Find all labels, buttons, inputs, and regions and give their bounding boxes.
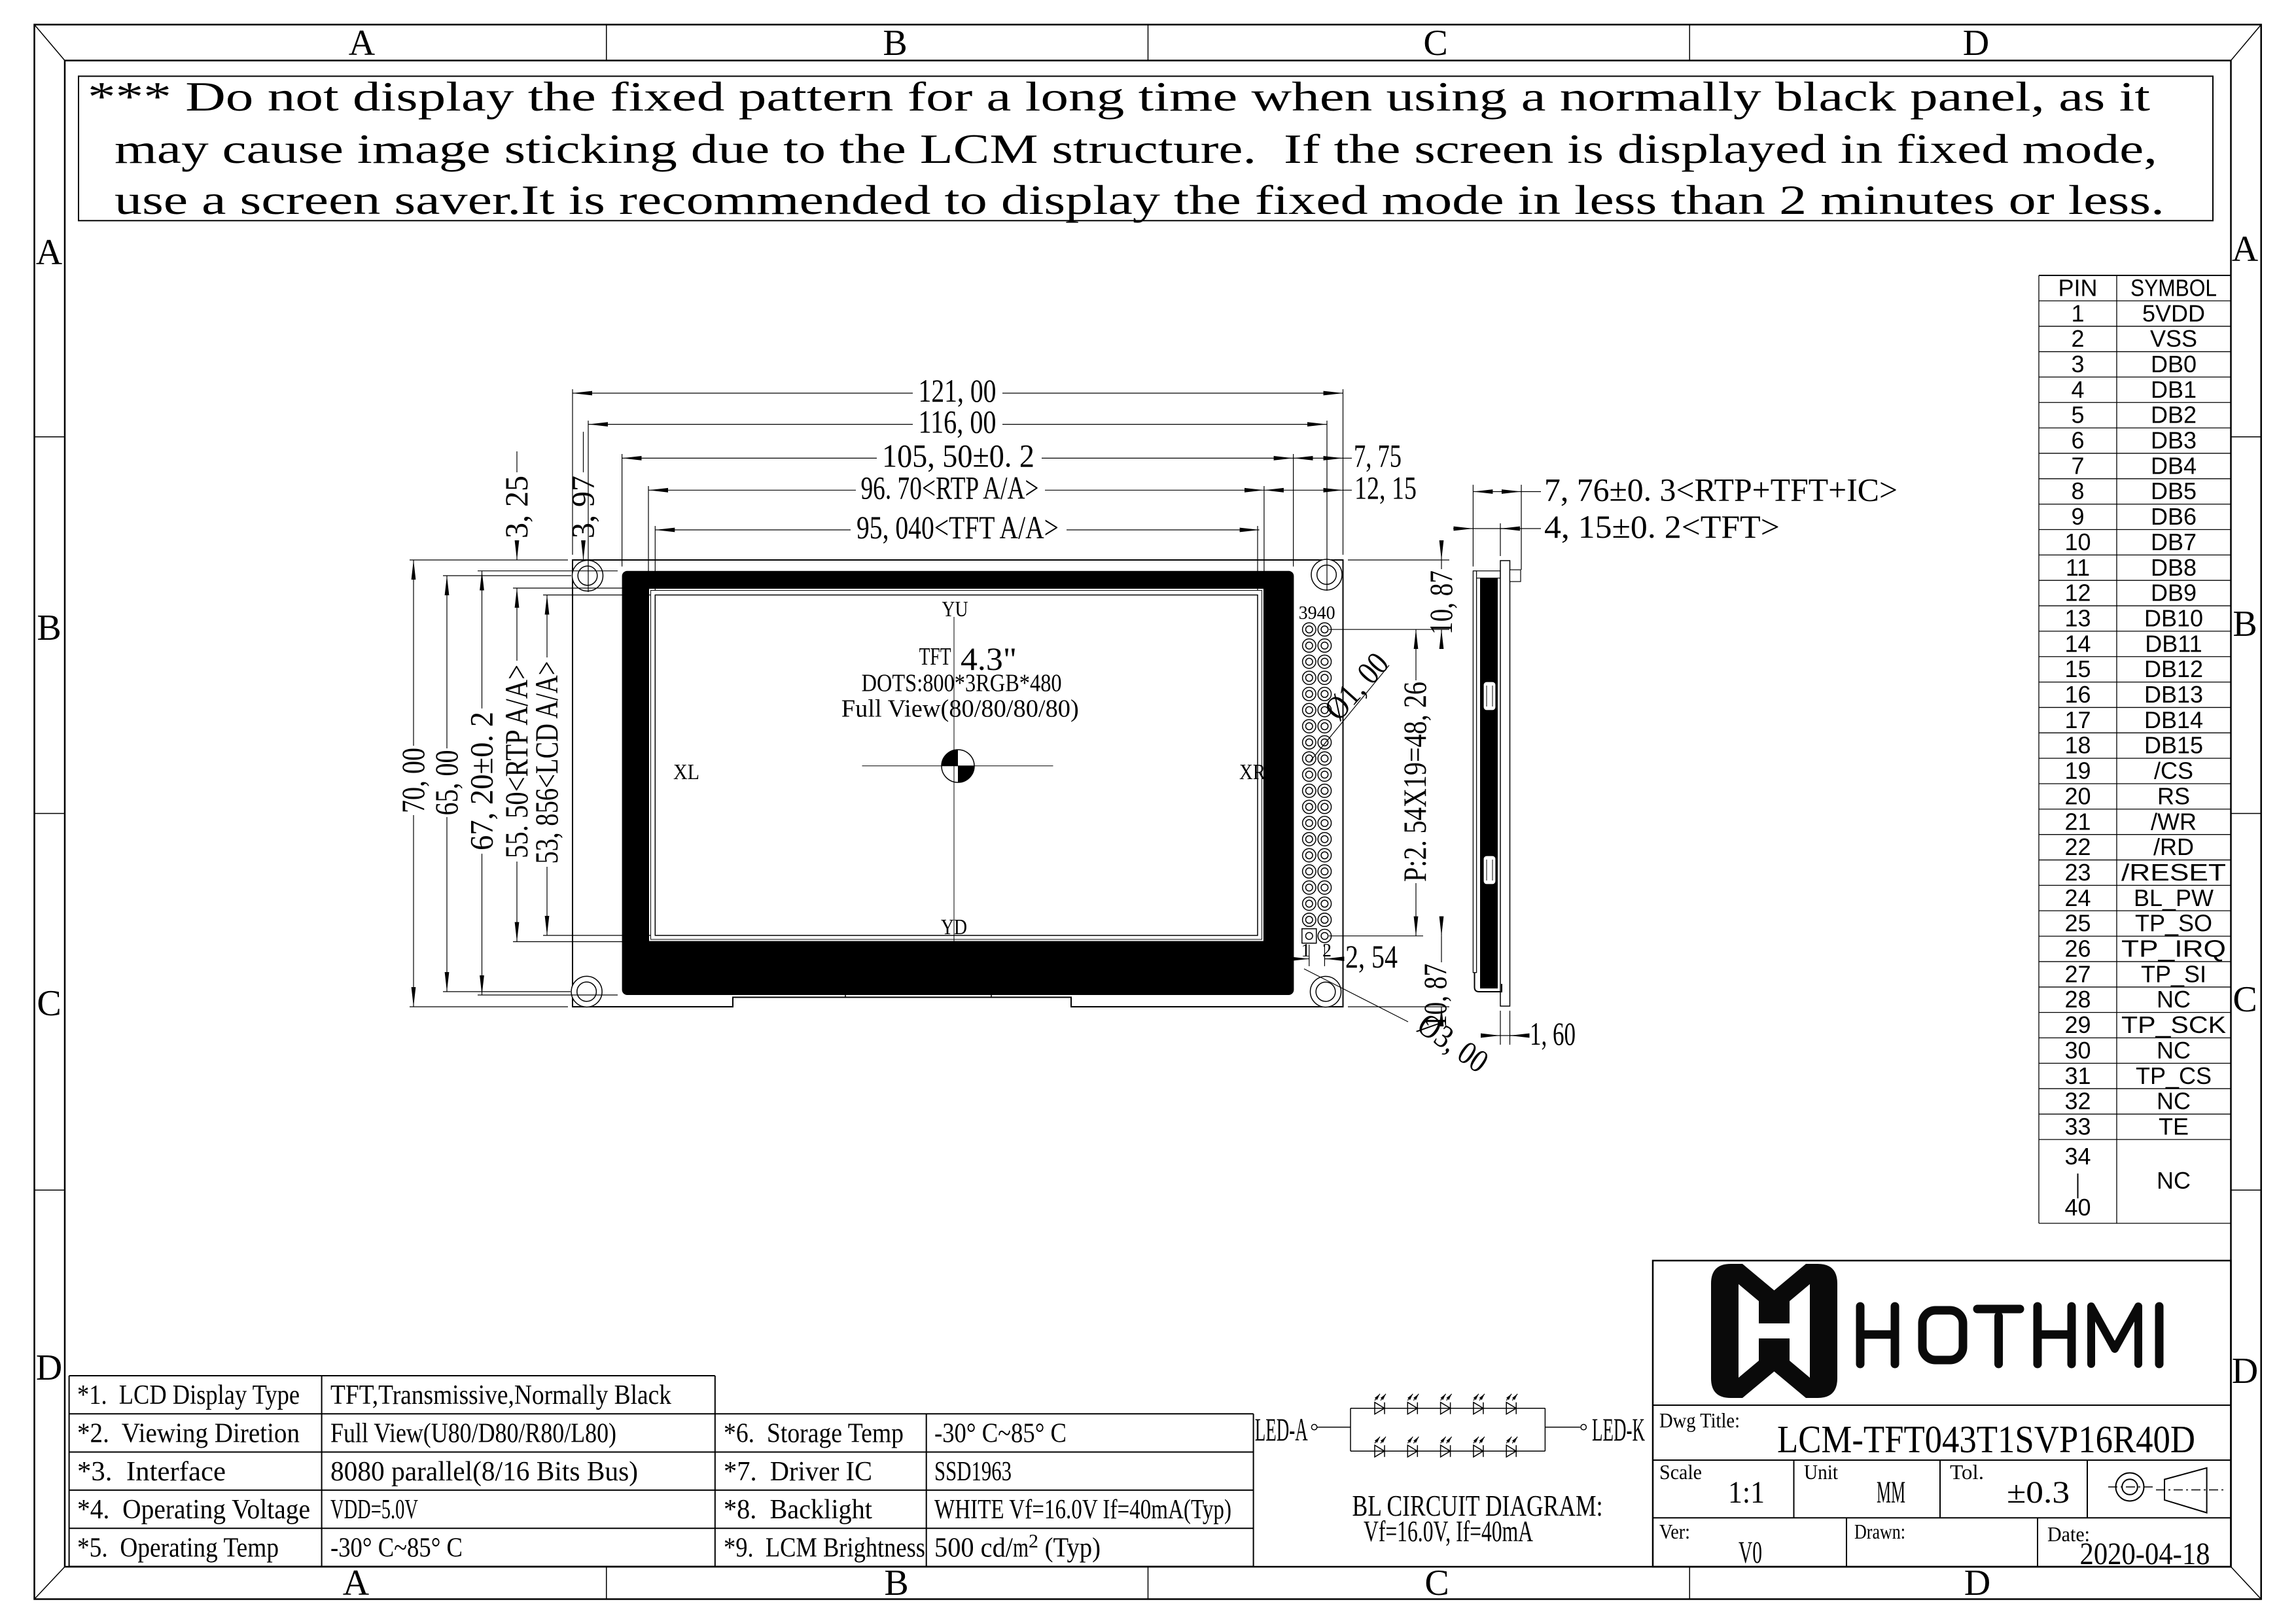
- svg-text:DB14: DB14: [2144, 707, 2203, 733]
- svg-text:Full View(U80/D80/R80/L80): Full View(U80/D80/R80/L80): [330, 1418, 616, 1448]
- svg-text:DB3: DB3: [2151, 427, 2197, 454]
- svg-text:*9. LCM Brightness: *9. LCM Brightness: [724, 1533, 925, 1563]
- svg-text:DB2: DB2: [2151, 402, 2197, 428]
- svg-text:DB5: DB5: [2151, 478, 2197, 504]
- svg-text:7, 76±0. 3<RTP+TFT+IC>: 7, 76±0. 3<RTP+TFT+IC>: [1544, 472, 1898, 508]
- svg-text:DB11: DB11: [2145, 630, 2202, 657]
- svg-text:1, 60: 1, 60: [1530, 1015, 1576, 1052]
- svg-text:4: 4: [2071, 376, 2084, 403]
- svg-text:3, 25: 3, 25: [498, 476, 535, 538]
- svg-text:Dwg Title:: Dwg Title:: [1659, 1408, 1740, 1432]
- svg-text:39: 39: [1299, 603, 1317, 623]
- svg-text:SYMBOL: SYMBOL: [2130, 274, 2217, 301]
- svg-text:*4. Operating Voltage: *4. Operating Voltage: [77, 1495, 310, 1525]
- svg-text:-30° C~85° C: -30° C~85° C: [330, 1533, 463, 1563]
- svg-text:B: B: [884, 1563, 908, 1603]
- svg-text:7, 75: 7, 75: [1354, 437, 1402, 474]
- svg-text:18: 18: [2064, 732, 2091, 759]
- svg-text:*7. Driver IC: *7. Driver IC: [724, 1457, 872, 1487]
- svg-text:TP_CS: TP_CS: [2136, 1062, 2212, 1089]
- svg-text:±0.3: ±0.3: [2007, 1475, 2070, 1510]
- svg-text:Scale: Scale: [1659, 1460, 1702, 1484]
- svg-text:use a screen saver.It is recom: use a screen saver.It is recommended to …: [115, 177, 2164, 223]
- svg-text:17: 17: [2064, 707, 2091, 733]
- svg-text:SSD1963: SSD1963: [934, 1457, 1012, 1487]
- svg-text:BL_PW: BL_PW: [2134, 884, 2214, 911]
- svg-text:20: 20: [2064, 782, 2091, 809]
- svg-text:19: 19: [2064, 758, 2091, 784]
- svg-text:DB9: DB9: [2151, 580, 2197, 606]
- svg-text:5: 5: [2071, 402, 2084, 428]
- svg-text:NC: NC: [2157, 986, 2191, 1013]
- svg-text:P:2. 54X19=48, 26: P:2. 54X19=48, 26: [1396, 682, 1433, 882]
- svg-text:96. 70<RTP A/A>: 96. 70<RTP A/A>: [861, 469, 1039, 506]
- svg-text:LCM-TFT043T1SVP16R40D: LCM-TFT043T1SVP16R40D: [1777, 1418, 2195, 1461]
- svg-text:*3. Interface: *3. Interface: [77, 1457, 226, 1487]
- svg-text:C: C: [1423, 23, 1447, 63]
- svg-text:2020-04-18: 2020-04-18: [2080, 1537, 2210, 1571]
- svg-text:DB13: DB13: [2144, 681, 2203, 708]
- svg-text:67, 20±0. 2: 67, 20±0. 2: [463, 712, 500, 850]
- svg-text:10: 10: [2064, 529, 2091, 555]
- svg-text:28: 28: [2064, 986, 2091, 1013]
- svg-text:40: 40: [2064, 1194, 2091, 1221]
- svg-text:2: 2: [2071, 325, 2084, 352]
- svg-text:*6. Storage Temp: *6. Storage Temp: [724, 1418, 904, 1448]
- svg-text:Tol.: Tol.: [1950, 1460, 1984, 1484]
- svg-text:DB10: DB10: [2144, 604, 2203, 631]
- svg-text:7: 7: [2071, 452, 2084, 479]
- svg-text:4, 15±0. 2<TFT>: 4, 15±0. 2<TFT>: [1544, 508, 1780, 545]
- svg-text:DB7: DB7: [2151, 529, 2197, 555]
- svg-text:24: 24: [2064, 884, 2091, 911]
- svg-text:31: 31: [2064, 1062, 2091, 1089]
- svg-text:12: 12: [2064, 580, 2091, 606]
- svg-text:29: 29: [2064, 1011, 2091, 1038]
- svg-text:D: D: [1964, 1563, 1990, 1603]
- svg-text:26: 26: [2064, 935, 2091, 962]
- svg-text:TP_IRQ: TP_IRQ: [2121, 935, 2226, 962]
- svg-text:15: 15: [2064, 655, 2091, 682]
- svg-text:NC: NC: [2157, 1037, 2191, 1064]
- svg-text:1:1: 1:1: [1728, 1475, 1765, 1510]
- svg-text:10, 87: 10, 87: [1422, 570, 1459, 635]
- svg-text:V0: V0: [1739, 1535, 1762, 1570]
- svg-text:3, 97: 3, 97: [565, 476, 601, 538]
- svg-text:Ver:: Ver:: [1659, 1520, 1690, 1543]
- svg-text:/RD: /RD: [2153, 833, 2194, 860]
- svg-text:34: 34: [2064, 1143, 2091, 1170]
- svg-text:95, 040<TFT A/A>: 95, 040<TFT A/A>: [857, 509, 1059, 546]
- svg-text:16: 16: [2064, 681, 2091, 708]
- svg-text:Unit: Unit: [1804, 1460, 1838, 1484]
- svg-text:13: 13: [2064, 604, 2091, 631]
- svg-text:3: 3: [2071, 351, 2084, 377]
- svg-text:DB0: DB0: [2151, 351, 2197, 377]
- svg-text:9: 9: [2071, 503, 2084, 530]
- svg-text:NC: NC: [2157, 1088, 2191, 1115]
- svg-text:8: 8: [2071, 478, 2084, 504]
- svg-text:A: A: [2232, 229, 2259, 270]
- svg-text:/WR: /WR: [2151, 808, 2197, 835]
- svg-text:may cause image sticking due t: may cause image sticking due to the LCM …: [115, 126, 2157, 172]
- svg-text:TFT,Transmissive,Normally Blac: TFT,Transmissive,Normally Black: [330, 1380, 671, 1410]
- svg-text:33: 33: [2064, 1113, 2091, 1140]
- svg-text:27: 27: [2064, 960, 2091, 987]
- svg-text:B: B: [37, 608, 61, 648]
- svg-text:A: A: [36, 232, 63, 273]
- svg-text:YU: YU: [942, 597, 968, 621]
- svg-text:25: 25: [2064, 910, 2091, 937]
- svg-text:5VDD: 5VDD: [2142, 300, 2205, 326]
- svg-text:TP_SCK: TP_SCK: [2121, 1011, 2226, 1038]
- svg-text:NC: NC: [2157, 1167, 2191, 1194]
- svg-text:VDD=5.0V: VDD=5.0V: [330, 1495, 418, 1525]
- svg-text:DB4: DB4: [2151, 452, 2197, 479]
- svg-text:WHITE Vf=16.0V If=40mA(Typ): WHITE Vf=16.0V If=40mA(Typ): [934, 1495, 1231, 1525]
- svg-text:A: A: [343, 1563, 370, 1603]
- svg-text:105, 50±0. 2: 105, 50±0. 2: [882, 437, 1034, 474]
- svg-text:DOTS:800*3RGB*480: DOTS:800*3RGB*480: [862, 669, 1062, 697]
- svg-text:*8. Backlight: *8. Backlight: [724, 1495, 872, 1525]
- svg-text:2, 54: 2, 54: [1345, 938, 1398, 975]
- svg-text:MM: MM: [1877, 1475, 1905, 1510]
- svg-text:14: 14: [2064, 630, 2091, 657]
- svg-text:D: D: [36, 1348, 62, 1388]
- svg-text:XR: XR: [1239, 760, 1265, 784]
- svg-text:DB6: DB6: [2151, 503, 2197, 530]
- svg-text:1: 1: [2071, 300, 2084, 326]
- svg-text:Full View(80/80/80/80): Full View(80/80/80/80): [841, 695, 1079, 723]
- svg-text:C: C: [1424, 1563, 1449, 1603]
- svg-text:500 cd/m2 (Typ): 500 cd/m2 (Typ): [934, 1530, 1101, 1563]
- svg-text:PIN: PIN: [2058, 274, 2097, 301]
- svg-text:D: D: [2232, 1351, 2258, 1391]
- svg-text:DB15: DB15: [2144, 732, 2203, 759]
- svg-text:Vf=16.0V, If=40mA: Vf=16.0V, If=40mA: [1364, 1514, 1533, 1548]
- svg-text:22: 22: [2064, 833, 2091, 860]
- svg-text:53, 856<LCD A/A>: 53, 856<LCD A/A>: [528, 661, 565, 864]
- svg-text:VSS: VSS: [2150, 325, 2197, 352]
- svg-text:TP_SO: TP_SO: [2135, 910, 2212, 937]
- svg-text:6: 6: [2071, 427, 2084, 454]
- svg-text:XL: XL: [673, 760, 699, 784]
- svg-text:70, 00: 70, 00: [395, 748, 431, 813]
- svg-text:30: 30: [2064, 1037, 2091, 1064]
- svg-text:DB12: DB12: [2144, 655, 2203, 682]
- svg-text:*1. LCD Display Type: *1. LCD Display Type: [77, 1380, 300, 1410]
- svg-text:11: 11: [2066, 554, 2090, 581]
- svg-text:/CS: /CS: [2154, 758, 2193, 784]
- svg-text:DB1: DB1: [2151, 376, 2197, 403]
- svg-text:65, 00: 65, 00: [428, 750, 465, 816]
- svg-text:Drawn:: Drawn:: [1854, 1520, 1905, 1543]
- svg-text:116, 00: 116, 00: [919, 404, 997, 440]
- svg-text:*5. Operating Temp: *5. Operating Temp: [77, 1533, 279, 1563]
- svg-text:23: 23: [2064, 859, 2091, 886]
- svg-text:8080 parallel(8/16 Bits Bus): 8080 parallel(8/16 Bits Bus): [330, 1457, 638, 1487]
- svg-text:A: A: [349, 23, 376, 63]
- svg-text:*2. Viewing Diretion: *2. Viewing Diretion: [77, 1418, 300, 1448]
- svg-text:12, 15: 12, 15: [1354, 469, 1417, 506]
- svg-text:B: B: [883, 23, 907, 63]
- svg-text:21: 21: [2064, 808, 2091, 835]
- svg-text:-30° C~85° C: -30° C~85° C: [934, 1418, 1067, 1448]
- svg-text:TFT: TFT: [919, 643, 951, 671]
- svg-text:RS: RS: [2157, 782, 2190, 809]
- svg-text:2: 2: [1322, 941, 1332, 961]
- svg-text:B: B: [2233, 604, 2257, 644]
- svg-text:TP_SI: TP_SI: [2141, 960, 2206, 987]
- svg-text:D: D: [1963, 23, 1989, 63]
- svg-text:40: 40: [1317, 603, 1335, 623]
- svg-text:32: 32: [2064, 1088, 2091, 1115]
- svg-text:LED-A: LED-A: [1255, 1411, 1308, 1448]
- svg-text:TE: TE: [2159, 1113, 2189, 1140]
- svg-text:*** Do not display the fixed p: *** Do not display the fixed pattern for…: [88, 73, 2150, 120]
- svg-text:LED-K: LED-K: [1592, 1411, 1645, 1448]
- svg-text:C: C: [2233, 979, 2257, 1020]
- svg-text:DB8: DB8: [2151, 554, 2197, 581]
- svg-text:/RESET: /RESET: [2121, 859, 2226, 886]
- svg-text:C: C: [37, 983, 61, 1024]
